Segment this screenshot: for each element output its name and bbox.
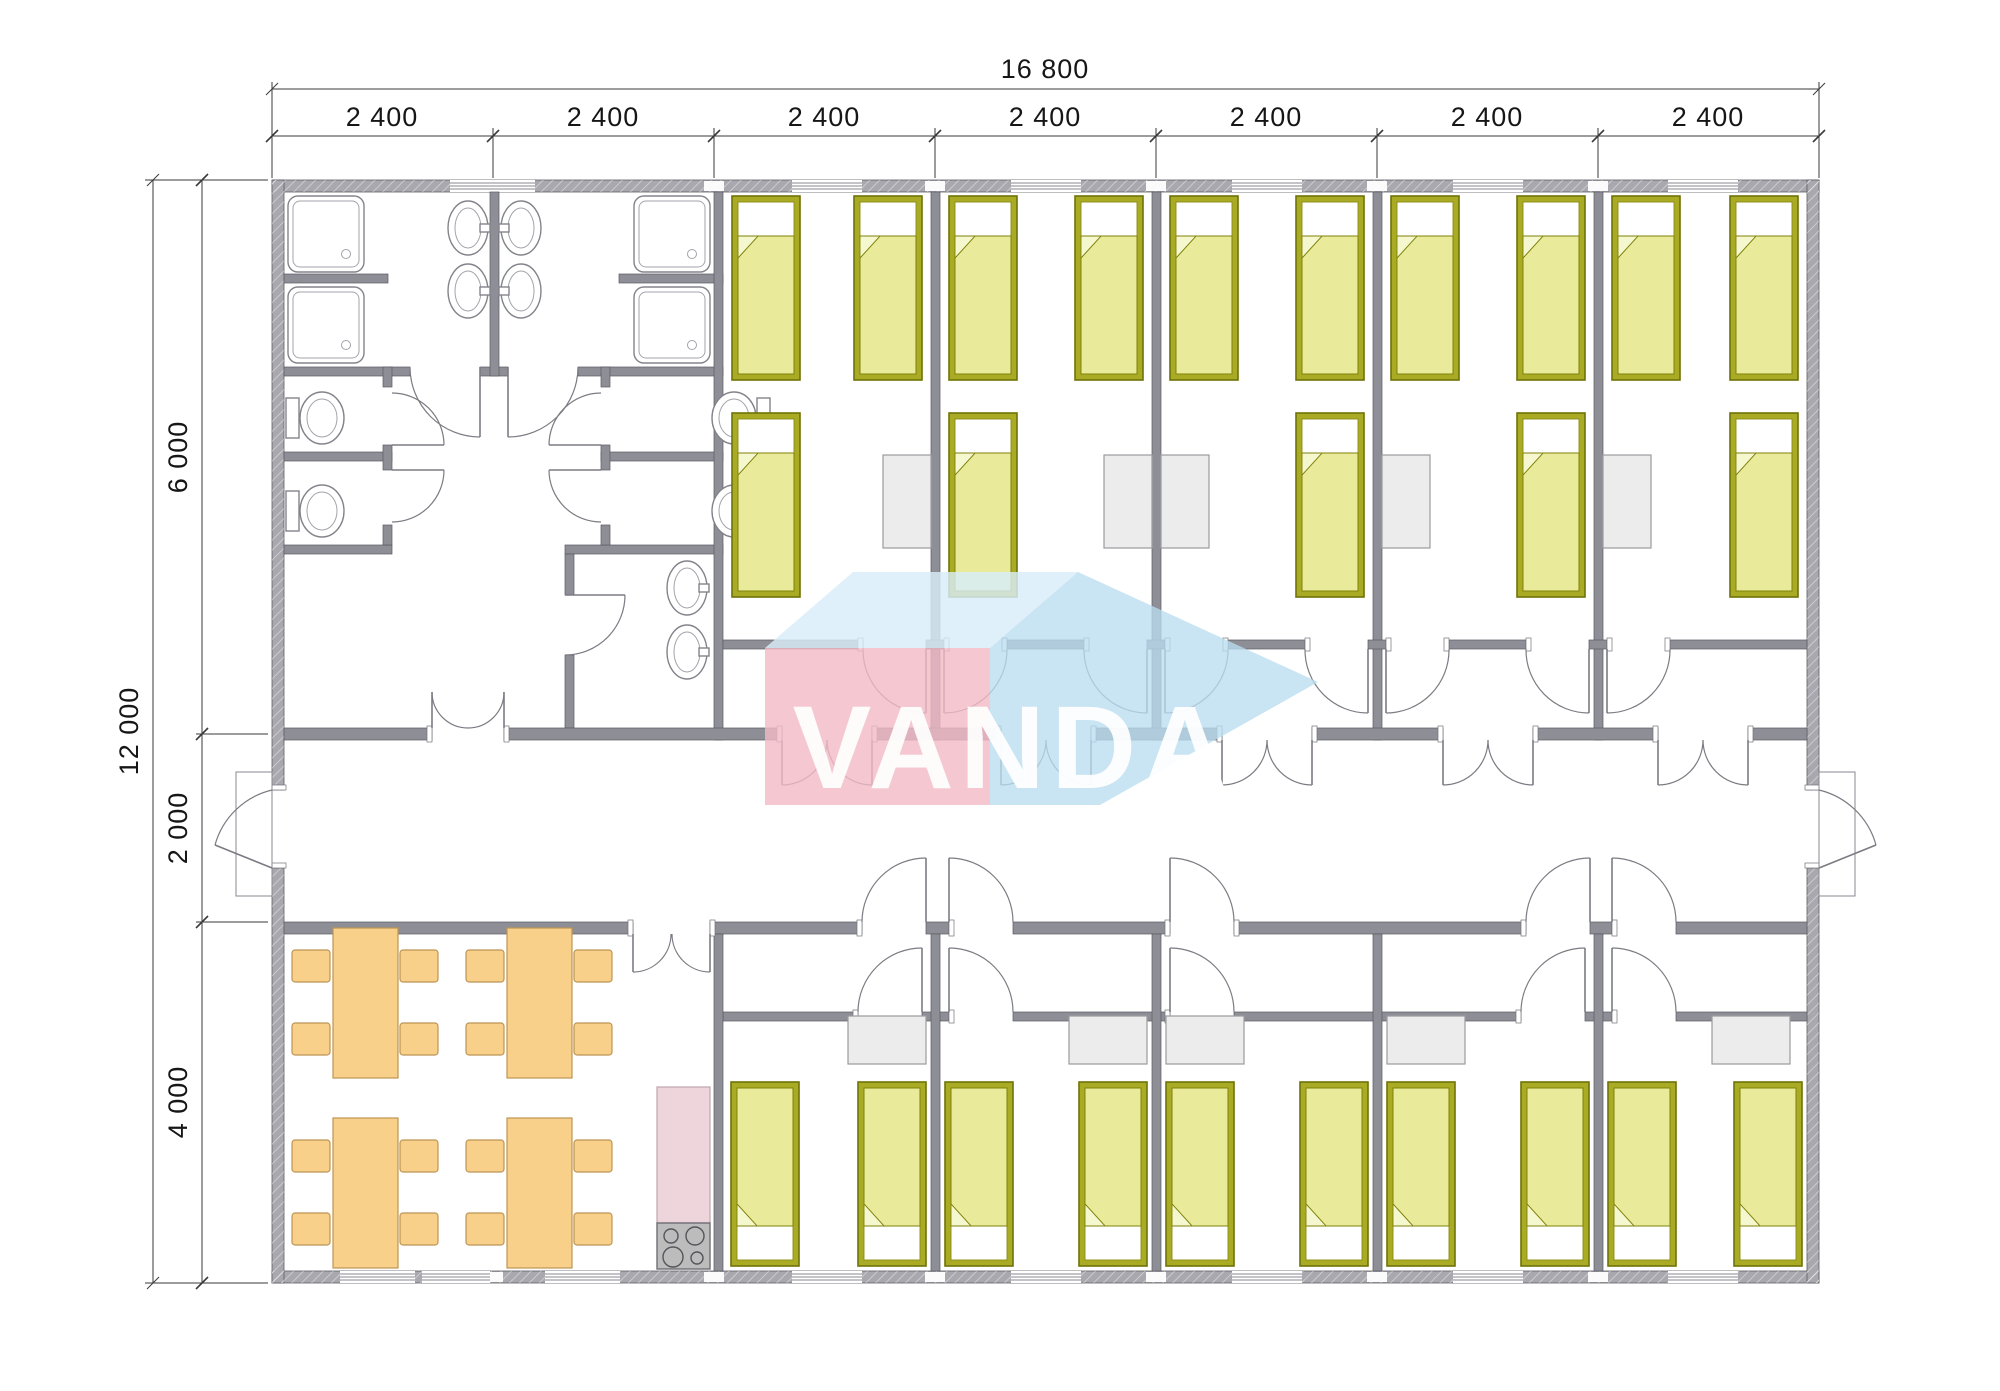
bed: [1517, 196, 1585, 380]
kitchen-unit: [657, 1087, 710, 1269]
dim-module-3: 2 400: [788, 102, 861, 132]
bed: [1608, 1082, 1676, 1266]
dining-table-set: [466, 928, 612, 1078]
dim-module-6: 2 400: [1451, 102, 1524, 132]
bottom-bedroom-door: [858, 948, 1676, 1012]
wash-basin: [499, 264, 541, 318]
dim-zone-top: 6 000: [163, 421, 193, 494]
bottom-vestibule-door: [862, 858, 1676, 922]
wash-basin: [448, 201, 490, 255]
bed: [1612, 196, 1680, 380]
bed: [732, 196, 800, 380]
dim-module-1: 2 400: [346, 102, 419, 132]
dining-door: [633, 934, 710, 972]
floor-plan-drawing: 16 800 2 400 2 400 2 400 2 400 2 400 2 4…: [0, 0, 2000, 1391]
toilet: [286, 485, 344, 537]
bed: [1730, 413, 1798, 597]
bed: [1391, 196, 1459, 380]
bed: [1734, 1082, 1802, 1266]
bed: [1300, 1082, 1368, 1266]
bed: [1521, 1082, 1589, 1266]
bed: [1730, 196, 1798, 380]
entrance-door-right: [1819, 772, 1876, 896]
dim-total-width: 16 800: [1001, 54, 1090, 84]
bed: [854, 196, 922, 380]
sanitary-fixtures: [286, 196, 770, 679]
wash-basin: [448, 264, 490, 318]
dim-module-2: 2 400: [567, 102, 640, 132]
dining-table-set: [292, 1118, 438, 1268]
bed: [1296, 413, 1364, 597]
bed: [1075, 196, 1143, 380]
dim-module-4: 2 400: [1009, 102, 1082, 132]
bed: [1166, 1082, 1234, 1266]
watermark-text: VANDA: [793, 682, 1234, 814]
bed: [949, 413, 1017, 597]
sanitary-doors: [392, 367, 625, 655]
dim-zone-corridor: 2 000: [163, 792, 193, 865]
entrance-door-left: [215, 772, 272, 896]
dim-total-depth: 12 000: [114, 687, 144, 776]
bed: [731, 1082, 799, 1266]
dim-module-7: 2 400: [1672, 102, 1745, 132]
dining-table-set: [466, 1118, 612, 1268]
bed: [858, 1082, 926, 1266]
toilet: [286, 392, 344, 444]
bed: [949, 196, 1017, 380]
vanda-watermark: VANDA: [765, 572, 1318, 814]
wash-basin: [667, 625, 709, 679]
bed: [1079, 1082, 1147, 1266]
bed: [1170, 196, 1238, 380]
wash-basin: [499, 201, 541, 255]
wash-basin: [667, 561, 709, 615]
bed: [1296, 196, 1364, 380]
bed: [945, 1082, 1013, 1266]
shower: [288, 287, 364, 363]
bed: [1387, 1082, 1455, 1266]
bed: [732, 413, 800, 597]
shower: [288, 196, 364, 272]
dim-module-5: 2 400: [1230, 102, 1303, 132]
shower: [634, 196, 710, 272]
dining-table-set: [292, 928, 438, 1078]
dim-zone-bottom: 4 000: [163, 1066, 193, 1139]
dining-area: [292, 928, 710, 1269]
bed: [1517, 413, 1585, 597]
floor-plan-page: 16 800 2 400 2 400 2 400 2 400 2 400 2 4…: [0, 0, 2000, 1391]
shower: [634, 287, 710, 363]
